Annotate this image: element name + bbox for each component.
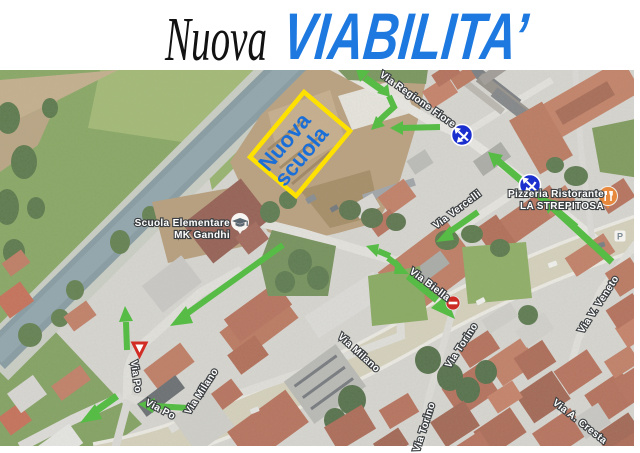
svg-text:MK Gandhi: MK Gandhi [174,230,230,241]
svg-text:LA STREPITOSA: LA STREPITOSA [520,201,604,212]
svg-text:Nuova: Nuova [164,6,267,74]
svg-text:P: P [617,232,623,242]
svg-text:Scuola Elementare: Scuola Elementare [135,218,231,229]
svg-text:VIABILITA’: VIABILITA’ [279,0,532,74]
svg-text:Pizzeria Ristorante: Pizzeria Ristorante [508,189,604,200]
